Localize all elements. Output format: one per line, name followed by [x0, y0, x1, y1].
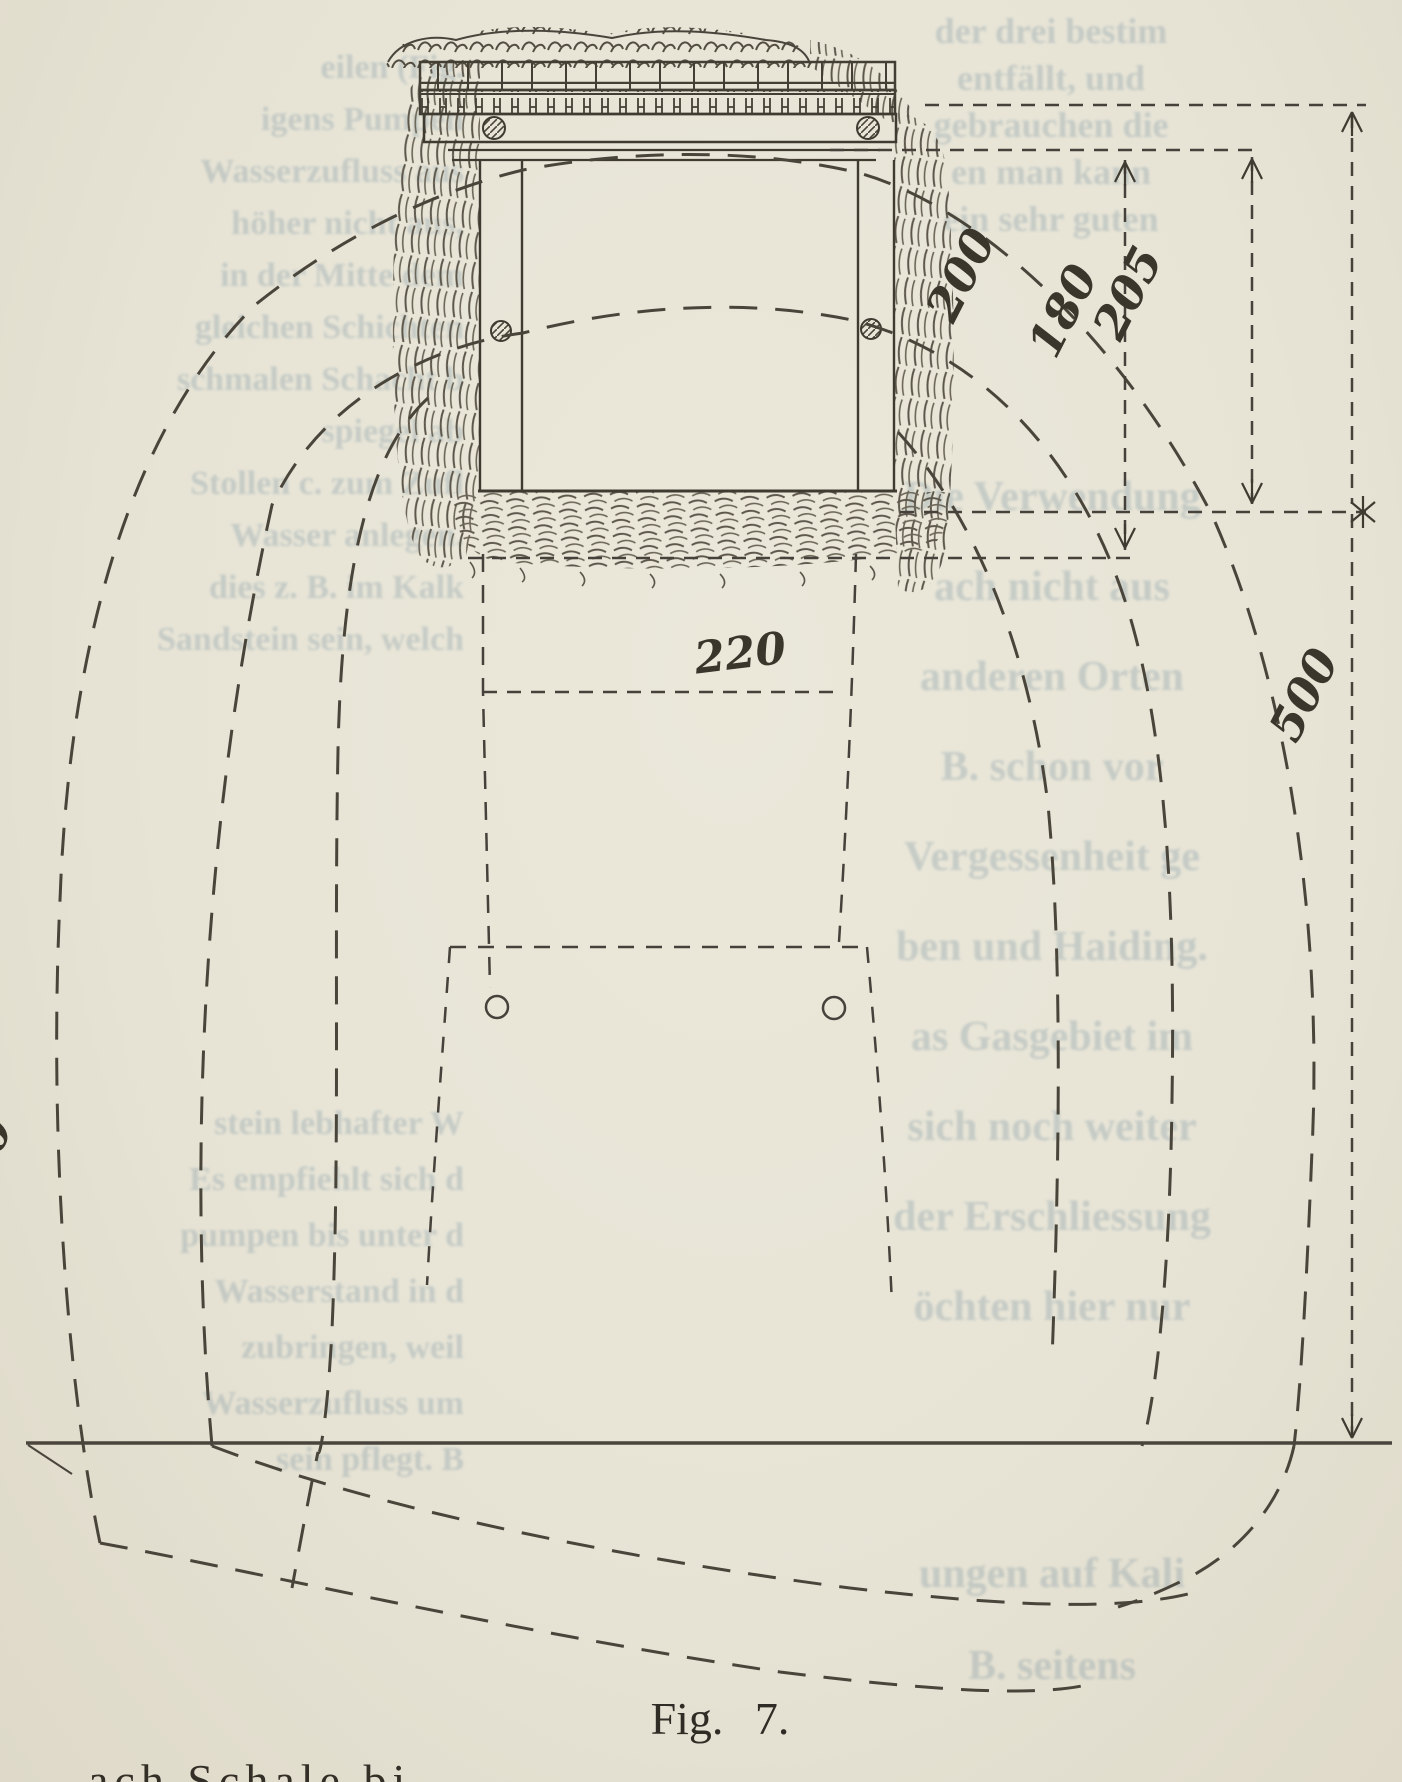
curve-middle	[201, 307, 1173, 1446]
under-board	[448, 150, 880, 160]
timber-frame	[424, 114, 897, 492]
dimension-arrows	[1115, 112, 1375, 1438]
drain-line-right	[867, 947, 892, 1305]
label-220: 220	[691, 623, 790, 685]
drainage-pipe-circle	[823, 997, 845, 1019]
figure-caption: Fig. 7.	[560, 1692, 880, 1745]
scanned-book-page: eilen (Fig. igens Pumpen Wasserzufluss a…	[0, 0, 1402, 1782]
drain-line-left	[427, 947, 450, 1285]
fig7-diagram: 220 200 180 205 500 500	[0, 0, 1402, 1782]
arrow-up	[1342, 112, 1362, 136]
arrow-up	[1242, 159, 1262, 183]
curve-middle-bottom	[212, 1446, 1196, 1604]
bottom-clipped-text-line: ach Schale bi	[88, 1754, 411, 1782]
bolt-head	[483, 117, 505, 139]
arrow-down	[1242, 479, 1262, 503]
guide-left	[483, 554, 490, 988]
rock-left-band	[393, 60, 480, 568]
arrow-up	[1115, 162, 1135, 186]
brick-course-lower	[420, 90, 895, 114]
label-500: 500	[1258, 640, 1350, 750]
curve-inner-left	[292, 398, 428, 1588]
arrow-down	[1342, 1414, 1362, 1438]
arrow-down	[1115, 524, 1135, 548]
curve-outer-tail	[1118, 1446, 1294, 1607]
drainage-pipe-circle	[486, 996, 508, 1018]
brick-masonry	[420, 62, 895, 114]
brick-course-upper	[420, 62, 895, 90]
ground-line	[26, 1443, 1392, 1474]
line-left-tick	[28, 1445, 72, 1474]
guide-right	[839, 554, 856, 942]
bolt-head	[491, 321, 511, 341]
label-left-partial: 500	[0, 1108, 24, 1218]
asterisk-mark	[1351, 496, 1375, 528]
drainage-zone	[427, 554, 892, 1305]
curve-outer-bottom	[100, 1543, 1098, 1691]
bolt-head	[857, 117, 879, 139]
